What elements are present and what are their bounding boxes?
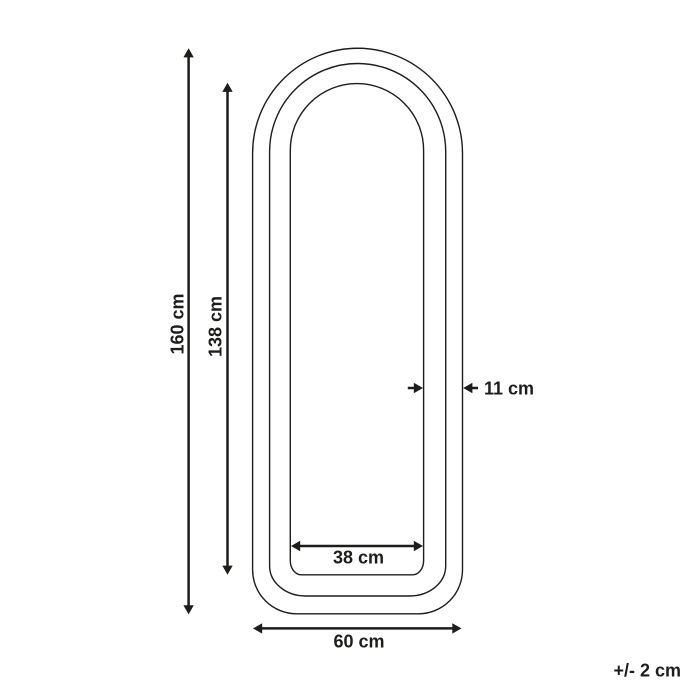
svg-text:11 cm: 11 cm <box>484 379 534 399</box>
svg-text:38 cm: 38 cm <box>333 548 384 568</box>
svg-text:138 cm: 138 cm <box>206 296 226 357</box>
svg-text:160 cm: 160 cm <box>168 293 188 354</box>
svg-text:60 cm: 60 cm <box>333 632 384 652</box>
svg-text:+/- 2 cm: +/- 2 cm <box>613 661 681 681</box>
